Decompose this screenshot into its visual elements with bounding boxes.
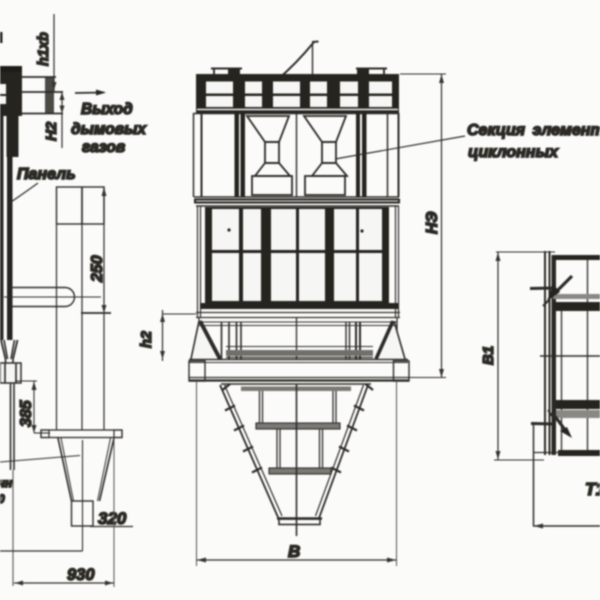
svg-text:Т1: Т1 [585, 479, 600, 499]
svg-text:320: 320 [98, 509, 127, 528]
svg-text:H2: H2 [43, 121, 60, 141]
svg-text:Выход: Выход [81, 101, 133, 118]
svg-text:чн: чн [0, 476, 13, 490]
svg-text:Секция элементов: Секция элементов [467, 122, 600, 139]
svg-text:385: 385 [18, 399, 35, 427]
svg-text:В1: В1 [480, 346, 497, 365]
svg-text:h1xb: h1xb [36, 32, 52, 66]
svg-text:циклонных: циклонных [468, 144, 559, 161]
svg-text:930: 930 [67, 566, 95, 584]
svg-text:газов: газов [82, 139, 125, 156]
svg-text:h2: h2 [139, 331, 155, 348]
svg-text:В: В [288, 542, 300, 561]
svg-text:0: 0 [0, 492, 5, 506]
svg-text:дымовых: дымовых [71, 121, 147, 138]
svg-text:Панель: Панель [17, 166, 76, 183]
svg-text:250: 250 [89, 255, 106, 283]
svg-text:НЭ: НЭ [424, 212, 441, 234]
